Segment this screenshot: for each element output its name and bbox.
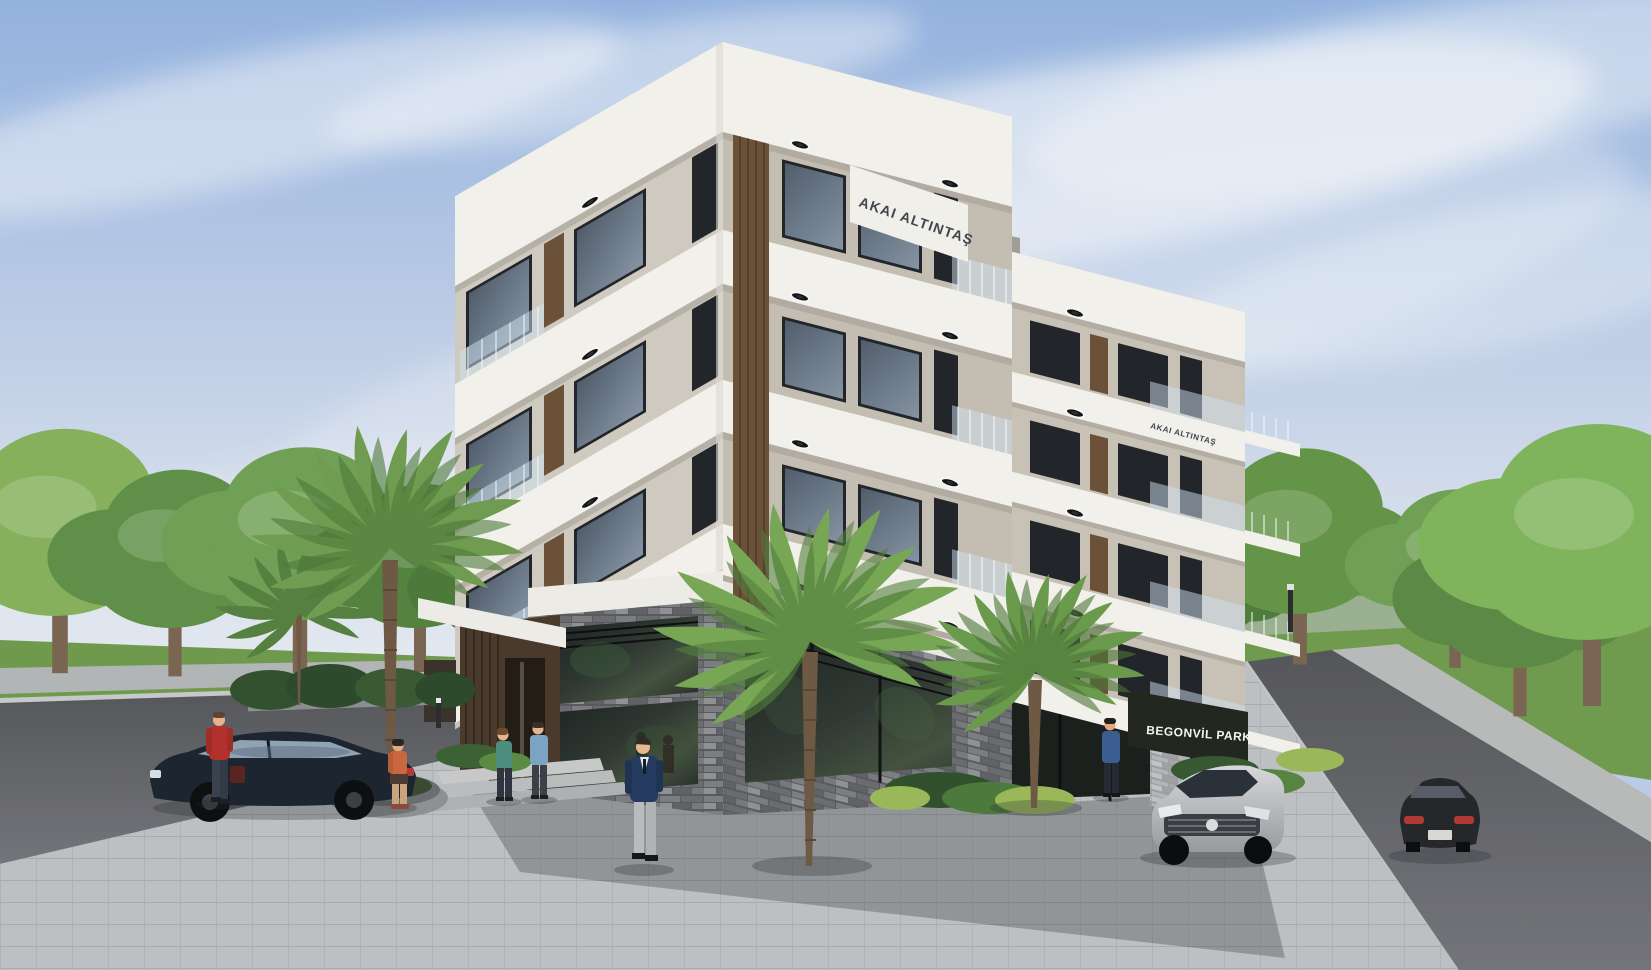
street-light <box>1288 586 1293 632</box>
scene-canvas: AKAI ALTINTAŞ <box>0 0 1651 970</box>
facade-right <box>723 42 1012 890</box>
briefcase <box>230 766 245 783</box>
render-stage: AKAI ALTINTAŞ <box>0 0 1651 970</box>
license-plate <box>1428 830 1452 840</box>
